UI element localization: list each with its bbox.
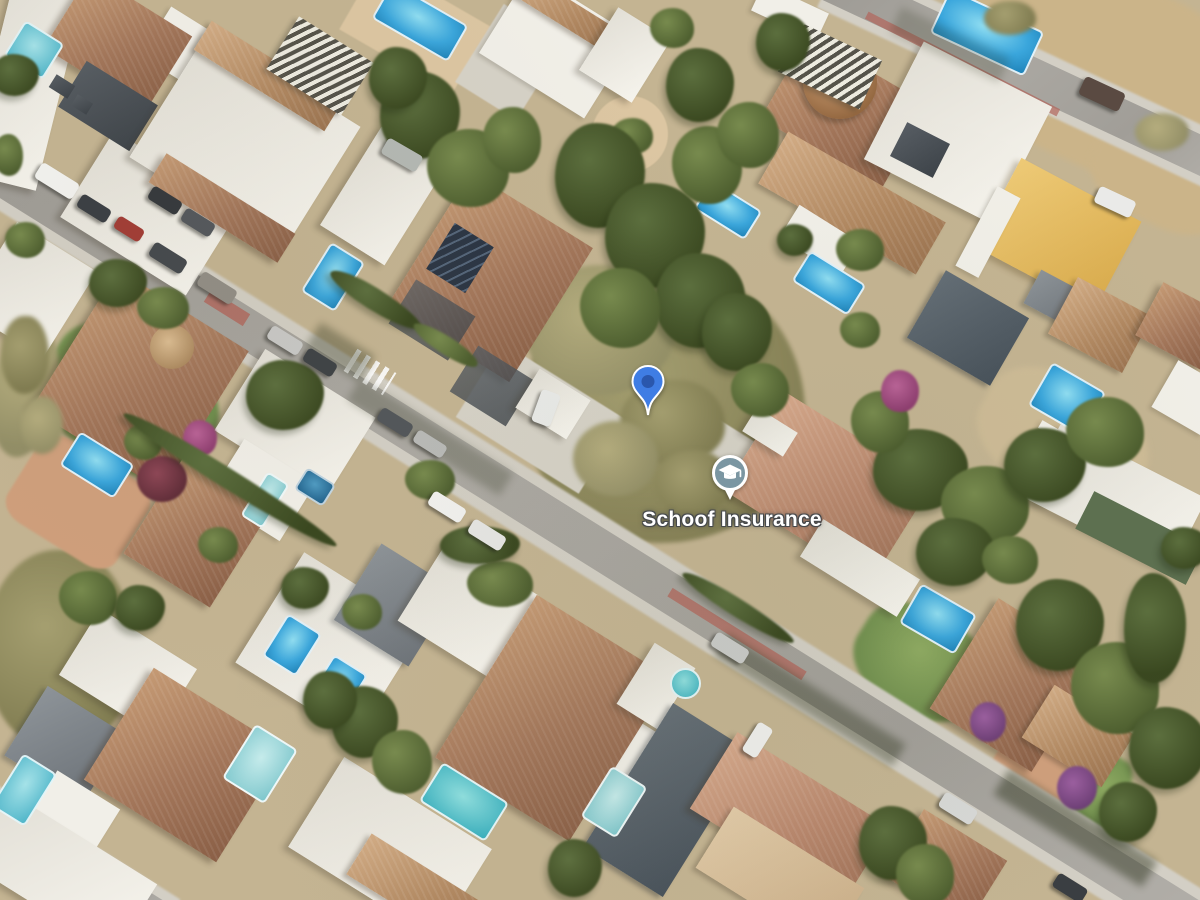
poi-label[interactable]: Schoof Insurance — [642, 508, 821, 532]
tree — [467, 561, 533, 607]
scrub-vegetation — [1135, 113, 1189, 151]
tree — [59, 571, 117, 625]
flowering-tree — [1057, 766, 1097, 810]
flowering-tree — [970, 702, 1006, 742]
tree — [5, 222, 45, 258]
satellite-imagery — [0, 0, 1200, 900]
tree — [731, 363, 789, 417]
tree — [717, 102, 779, 168]
tree — [580, 268, 660, 348]
flowering-tree — [881, 370, 919, 412]
map-canvas[interactable]: Schoof Insurance — [0, 0, 1200, 900]
tree — [548, 839, 602, 897]
scrub-vegetation — [984, 1, 1036, 35]
tree — [982, 536, 1038, 584]
tree — [836, 229, 884, 271]
tree — [840, 312, 880, 348]
poi-badge-schoof-insurance[interactable] — [710, 454, 750, 502]
tree — [1066, 397, 1144, 467]
turret-roof — [150, 325, 194, 369]
tree — [1099, 782, 1157, 842]
tree — [650, 8, 694, 48]
tree — [405, 460, 455, 500]
tree — [115, 585, 165, 631]
building-roof — [1151, 360, 1200, 436]
map-pin-marker[interactable] — [631, 365, 665, 417]
tree — [1124, 573, 1186, 683]
tree — [137, 287, 189, 329]
tile-roof — [1135, 282, 1200, 370]
scrub-vegetation — [573, 421, 658, 496]
flowering-tree — [137, 456, 187, 502]
tree — [666, 48, 734, 122]
tree — [1129, 707, 1200, 789]
scrub-vegetation — [21, 396, 63, 454]
tree — [342, 594, 382, 630]
graduation-cap-icon — [710, 454, 750, 502]
scrub-vegetation — [1, 316, 49, 394]
map-pin-icon — [631, 365, 665, 417]
tree — [372, 730, 432, 794]
tree — [896, 844, 954, 900]
tree — [1161, 527, 1200, 569]
swimming-pool — [670, 668, 701, 699]
tree — [483, 107, 541, 173]
tree — [198, 527, 238, 563]
